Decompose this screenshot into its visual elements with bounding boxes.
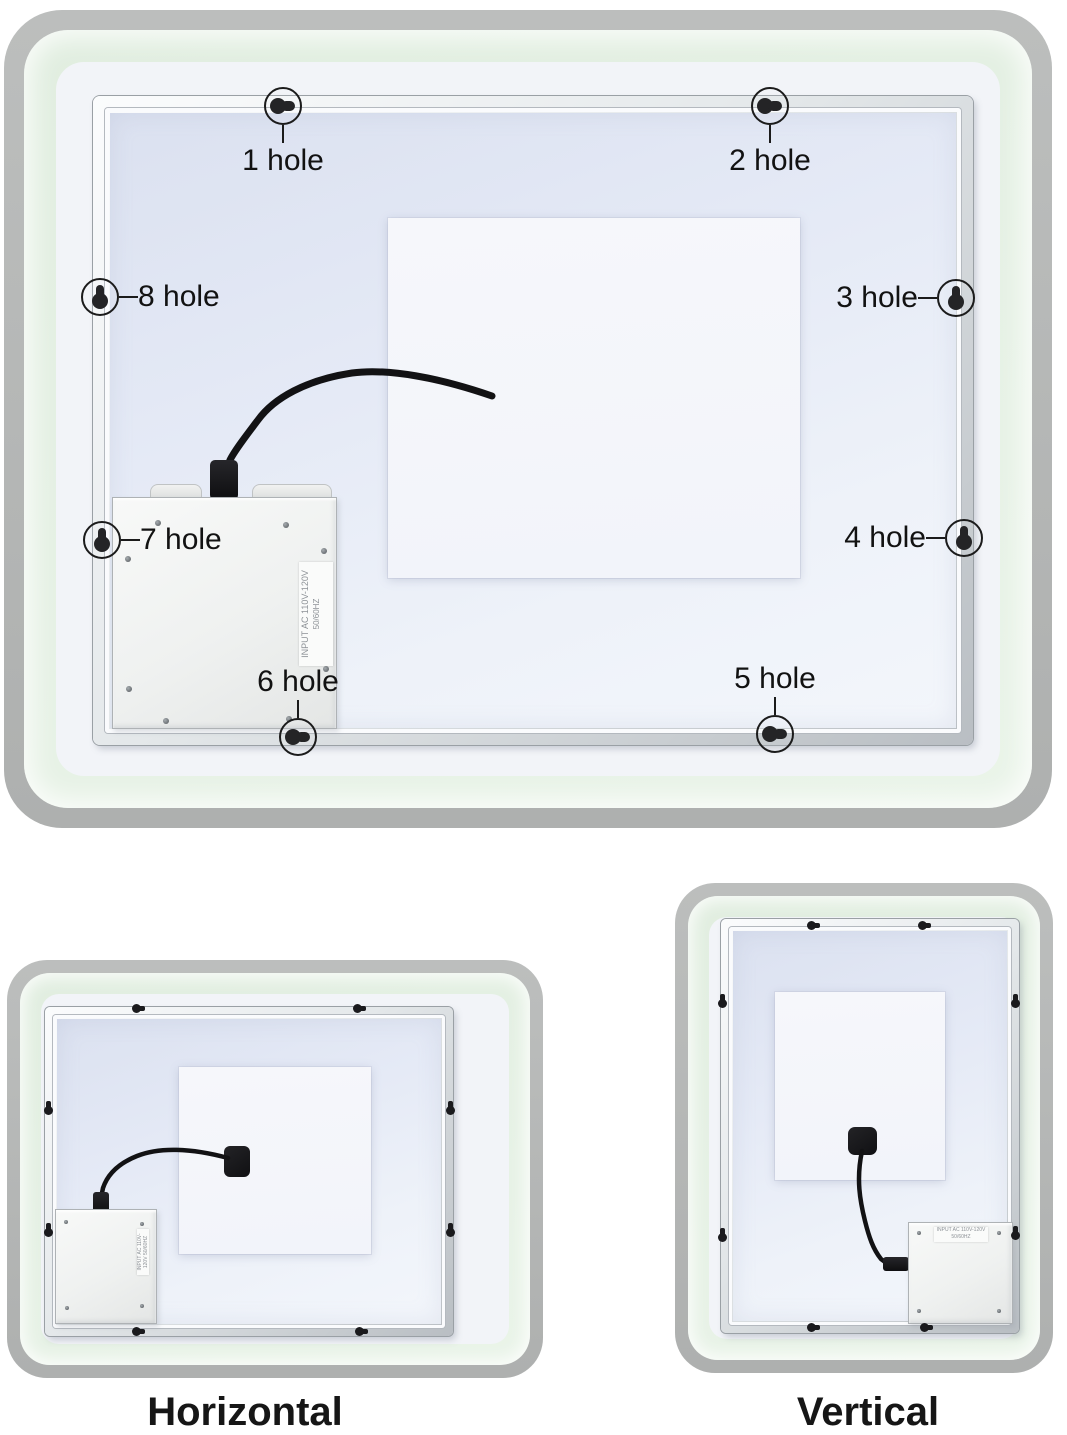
keyhole-icon [937, 279, 975, 317]
mount-hole-5: 5 hole [720, 661, 830, 753]
driver-spec-label: INPUT AC 110V-120V 50/60HZ [934, 1227, 988, 1242]
driver-spec-line2: 50/60HZ [934, 1234, 988, 1241]
hole-label-1: 1 hole [242, 143, 324, 179]
keyhole-icon [81, 278, 119, 316]
vertical-orientation-figure: INPUT AC 110V-120V 50/60HZ [675, 883, 1053, 1373]
backlight-panel [179, 1067, 371, 1254]
screw-icon [65, 1306, 69, 1310]
power-driver-box: INPUT AC 110V-120V 50/60HZ [908, 1222, 1013, 1324]
mount-hole-2: 2 hole [715, 87, 825, 179]
cable-connector [883, 1257, 909, 1271]
caption-horizontal: Horizontal [95, 1390, 395, 1435]
keyhole-icon [807, 1323, 816, 1332]
screw-icon [283, 522, 289, 528]
keyhole-icon [264, 87, 302, 125]
keyhole-icon [920, 1323, 929, 1332]
keyhole-icon [132, 1327, 141, 1336]
screw-icon [140, 1304, 144, 1308]
screw-icon [997, 1309, 1001, 1313]
driver-spec-label: INPUT AC 110V-120V 50/60HZ [299, 562, 333, 666]
keyhole-icon [353, 1004, 362, 1013]
keyhole-icon [945, 519, 983, 557]
keyhole-icon [279, 718, 317, 756]
keyhole-icon [446, 1228, 455, 1237]
driver-spec-line2: 50/60HZ [311, 562, 323, 666]
keyhole-icon [132, 1004, 141, 1013]
screw-icon [917, 1231, 921, 1235]
junction-pad [224, 1146, 250, 1177]
keyhole-icon [1011, 1231, 1020, 1240]
keyhole-icon [1011, 999, 1020, 1008]
driver-spec-text: INPUT AC 110V-120V 50/60HZ [137, 1229, 149, 1275]
keyhole-icon [83, 521, 121, 559]
caption-vertical: Vertical [718, 1390, 1018, 1435]
keyhole-icon [918, 921, 927, 930]
mount-hole-7: 7 hole [83, 521, 228, 559]
keyhole-icon [756, 715, 794, 753]
driver-spec-label: INPUT AC 110V-120V 50/60HZ [137, 1229, 149, 1275]
mount-hole-6: 6 hole [243, 664, 353, 756]
horizontal-orientation-figure: INPUT AC 110V-120V 50/60HZ [7, 960, 543, 1378]
screw-icon [163, 718, 169, 724]
keyhole-icon [751, 87, 789, 125]
leader-line [119, 296, 138, 298]
hole-label-5: 5 hole [734, 661, 816, 697]
keyhole-icon [807, 921, 816, 930]
hole-label-6: 6 hole [257, 664, 339, 700]
screw-icon [140, 1222, 144, 1226]
hole-label-3: 3 hole [830, 280, 918, 316]
hole-label-7: 7 hole [140, 522, 228, 558]
leader-line [282, 125, 284, 143]
leader-line [769, 125, 771, 143]
keyhole-icon [718, 999, 727, 1008]
screw-icon [997, 1231, 1001, 1235]
screw-icon [64, 1220, 68, 1224]
hole-label-4: 4 hole [838, 520, 926, 556]
driver-spec-line1: INPUT AC 110V-120V [299, 562, 311, 666]
keyhole-icon [44, 1228, 53, 1237]
cable-connector [210, 460, 238, 500]
mount-hole-8: 8 hole [81, 278, 226, 316]
keyhole-icon [44, 1106, 53, 1115]
leader-line [121, 539, 140, 541]
keyhole-icon [355, 1327, 364, 1336]
keyhole-icon [446, 1106, 455, 1115]
mount-hole-4: 4 hole [838, 519, 983, 557]
junction-pad [848, 1127, 877, 1155]
backlight-panel [388, 218, 800, 578]
hole-label-8: 8 hole [138, 279, 226, 315]
leader-line [926, 537, 945, 539]
power-driver-box: INPUT AC 110V-120V 50/60HZ [55, 1209, 157, 1324]
leader-line [297, 700, 299, 718]
screw-icon [321, 548, 327, 554]
hole-label-2: 2 hole [729, 143, 811, 179]
screw-icon [917, 1309, 921, 1313]
main-back-view: INPUT AC 110V-120V 50/60HZ 1 hole 2 hole… [4, 10, 1052, 828]
leader-line [774, 697, 776, 715]
mount-hole-1: 1 hole [228, 87, 338, 179]
leader-line [918, 297, 937, 299]
screw-icon [126, 686, 132, 692]
keyhole-icon [718, 1233, 727, 1242]
driver-spec-line1: INPUT AC 110V-120V [934, 1227, 988, 1234]
mount-hole-3: 3 hole [830, 279, 975, 317]
